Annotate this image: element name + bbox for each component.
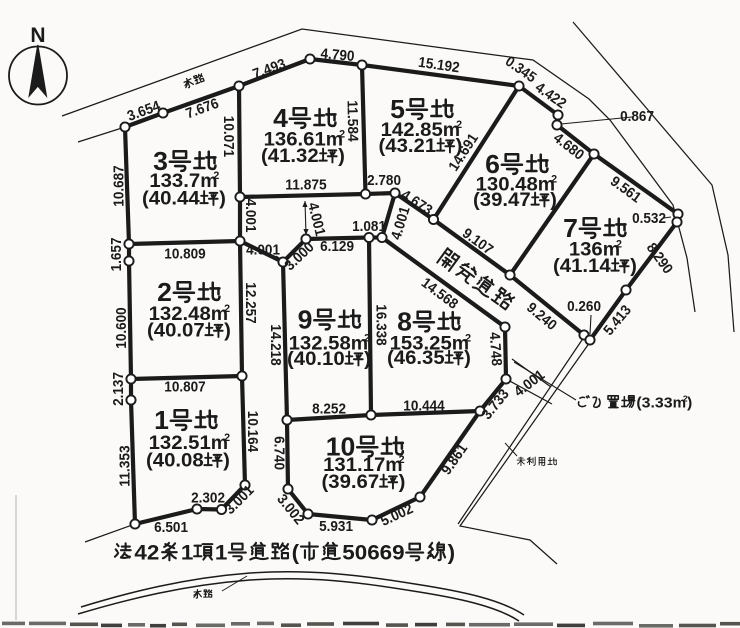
svg-text:(40.08: (40.08	[146, 450, 204, 472]
svg-text:): )	[338, 145, 345, 167]
svg-text:10.071: 10.071	[220, 116, 236, 157]
svg-text:2.302: 2.302	[191, 491, 225, 507]
svg-text:2.780: 2.780	[367, 173, 401, 189]
svg-text:2.137: 2.137	[111, 372, 127, 406]
svg-text:1: 1	[215, 541, 228, 565]
svg-text:42: 42	[134, 541, 159, 565]
svg-text:): )	[364, 348, 371, 370]
svg-text:(40.10: (40.10	[287, 348, 345, 370]
svg-text:): )	[219, 188, 226, 210]
svg-text:): )	[550, 189, 557, 211]
svg-text:(3.33: (3.33	[636, 395, 672, 412]
svg-text:2: 2	[224, 432, 230, 444]
svg-text:): )	[464, 347, 471, 369]
svg-text:2: 2	[551, 174, 557, 186]
svg-text:4.001: 4.001	[246, 243, 280, 259]
svg-text:): )	[448, 541, 456, 565]
svg-text:2: 2	[224, 303, 230, 315]
svg-text:2: 2	[616, 239, 622, 251]
svg-text:(43.21: (43.21	[379, 135, 437, 157]
svg-text:4.001: 4.001	[242, 199, 258, 233]
svg-text:(41.32: (41.32	[261, 145, 319, 167]
svg-text:50669: 50669	[342, 541, 404, 565]
svg-text:2: 2	[213, 170, 219, 182]
svg-text:1.081: 1.081	[352, 219, 386, 235]
svg-text:10.444: 10.444	[403, 399, 445, 415]
svg-text:14.218: 14.218	[267, 324, 283, 365]
svg-text:(41.14: (41.14	[553, 255, 611, 277]
svg-text:2: 2	[364, 333, 370, 345]
svg-text:0.260: 0.260	[567, 299, 601, 315]
svg-text:): )	[399, 471, 406, 493]
svg-text:16.338: 16.338	[372, 304, 388, 345]
svg-text:0.867: 0.867	[620, 109, 654, 125]
svg-text:10.687: 10.687	[112, 165, 128, 206]
svg-text:0.532: 0.532	[632, 211, 666, 227]
svg-text:1: 1	[181, 541, 194, 565]
svg-text:10.600: 10.600	[114, 307, 130, 348]
svg-text:10.809: 10.809	[164, 247, 205, 263]
svg-text:11.584: 11.584	[344, 100, 361, 142]
svg-text:6.501: 6.501	[154, 520, 188, 536]
svg-text:): )	[224, 320, 231, 342]
svg-text:10.807: 10.807	[164, 380, 205, 396]
svg-text:8.252: 8.252	[312, 402, 346, 418]
svg-text:11.875: 11.875	[285, 178, 326, 194]
svg-text:9: 9	[298, 307, 313, 335]
svg-text:(39.67: (39.67	[322, 471, 380, 493]
svg-text:): )	[687, 395, 692, 412]
svg-text:6.740: 6.740	[270, 436, 286, 470]
svg-text:(46.35: (46.35	[387, 347, 445, 369]
svg-text:12.257: 12.257	[242, 282, 258, 323]
svg-text:2: 2	[399, 454, 405, 466]
svg-text:2: 2	[465, 333, 471, 345]
svg-text:(39.47: (39.47	[473, 189, 531, 211]
svg-text:5.931: 5.931	[319, 519, 353, 535]
svg-text:4.748: 4.748	[486, 332, 504, 367]
svg-text:11.353: 11.353	[118, 445, 134, 486]
svg-text:): )	[223, 450, 230, 472]
svg-text:1.657: 1.657	[109, 238, 125, 272]
svg-text:(40.07: (40.07	[147, 320, 205, 342]
svg-text:(: (	[292, 541, 300, 565]
svg-text:2: 2	[456, 119, 462, 131]
svg-text:(40.44: (40.44	[142, 188, 200, 210]
svg-text:4.790: 4.790	[320, 46, 355, 65]
svg-text:): )	[630, 255, 637, 277]
svg-text:1: 1	[154, 407, 169, 435]
svg-text:10.164: 10.164	[244, 411, 260, 453]
svg-text:N: N	[30, 24, 45, 47]
svg-text:6.129: 6.129	[320, 239, 354, 255]
